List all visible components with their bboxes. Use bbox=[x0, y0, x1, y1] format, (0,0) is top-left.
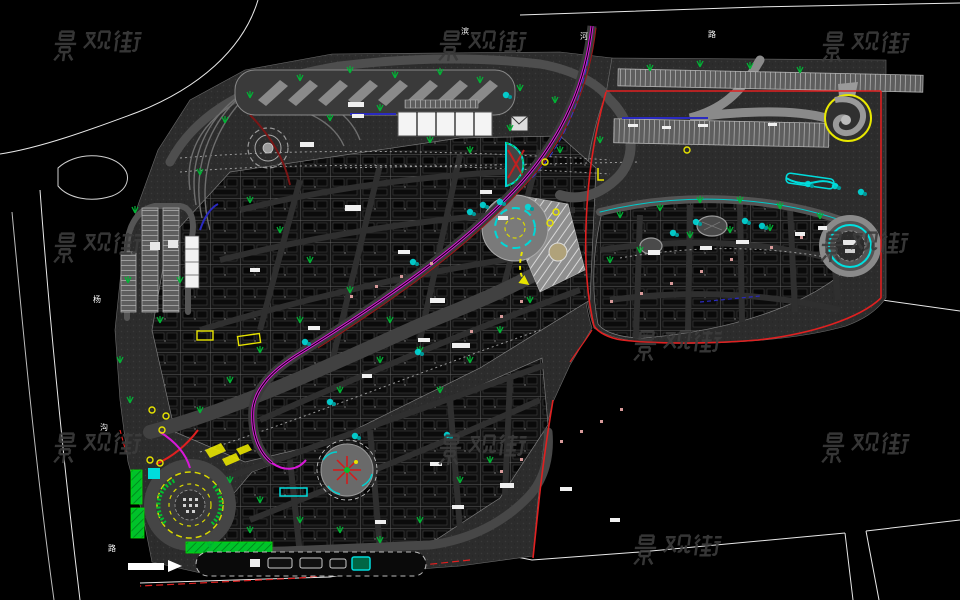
big-circle-plaza bbox=[150, 465, 230, 545]
road-island-topleft bbox=[58, 156, 127, 199]
road-name-label: 路 bbox=[708, 29, 716, 39]
roundabout-core bbox=[263, 143, 273, 153]
bus-cyan bbox=[352, 557, 370, 570]
car bbox=[330, 559, 346, 568]
cad-site-plan: 景观街 bbox=[0, 0, 960, 600]
envelope-icon bbox=[511, 116, 528, 131]
site-plan-drawing: 景观街 bbox=[0, 0, 960, 600]
watermark-text bbox=[820, 433, 910, 463]
watermark-text bbox=[820, 32, 910, 62]
road-name-label: 沟 bbox=[100, 422, 108, 432]
road-name-label: 河 bbox=[580, 31, 588, 41]
watermark-text bbox=[632, 535, 722, 565]
road-top-edge bbox=[520, 3, 960, 15]
road-name-label: 杨 bbox=[93, 294, 101, 304]
road-name-label: 路 bbox=[108, 543, 116, 553]
parking-row-small bbox=[405, 100, 478, 108]
watermark-text bbox=[52, 31, 142, 61]
car bbox=[300, 558, 322, 568]
road-bottom-right-1 bbox=[640, 520, 960, 600]
pool-circle bbox=[549, 243, 567, 261]
stall-row-white bbox=[398, 112, 492, 136]
road-left-edge-2 bbox=[12, 212, 54, 600]
car bbox=[268, 558, 292, 568]
road-name-label: 滨 bbox=[461, 26, 469, 36]
